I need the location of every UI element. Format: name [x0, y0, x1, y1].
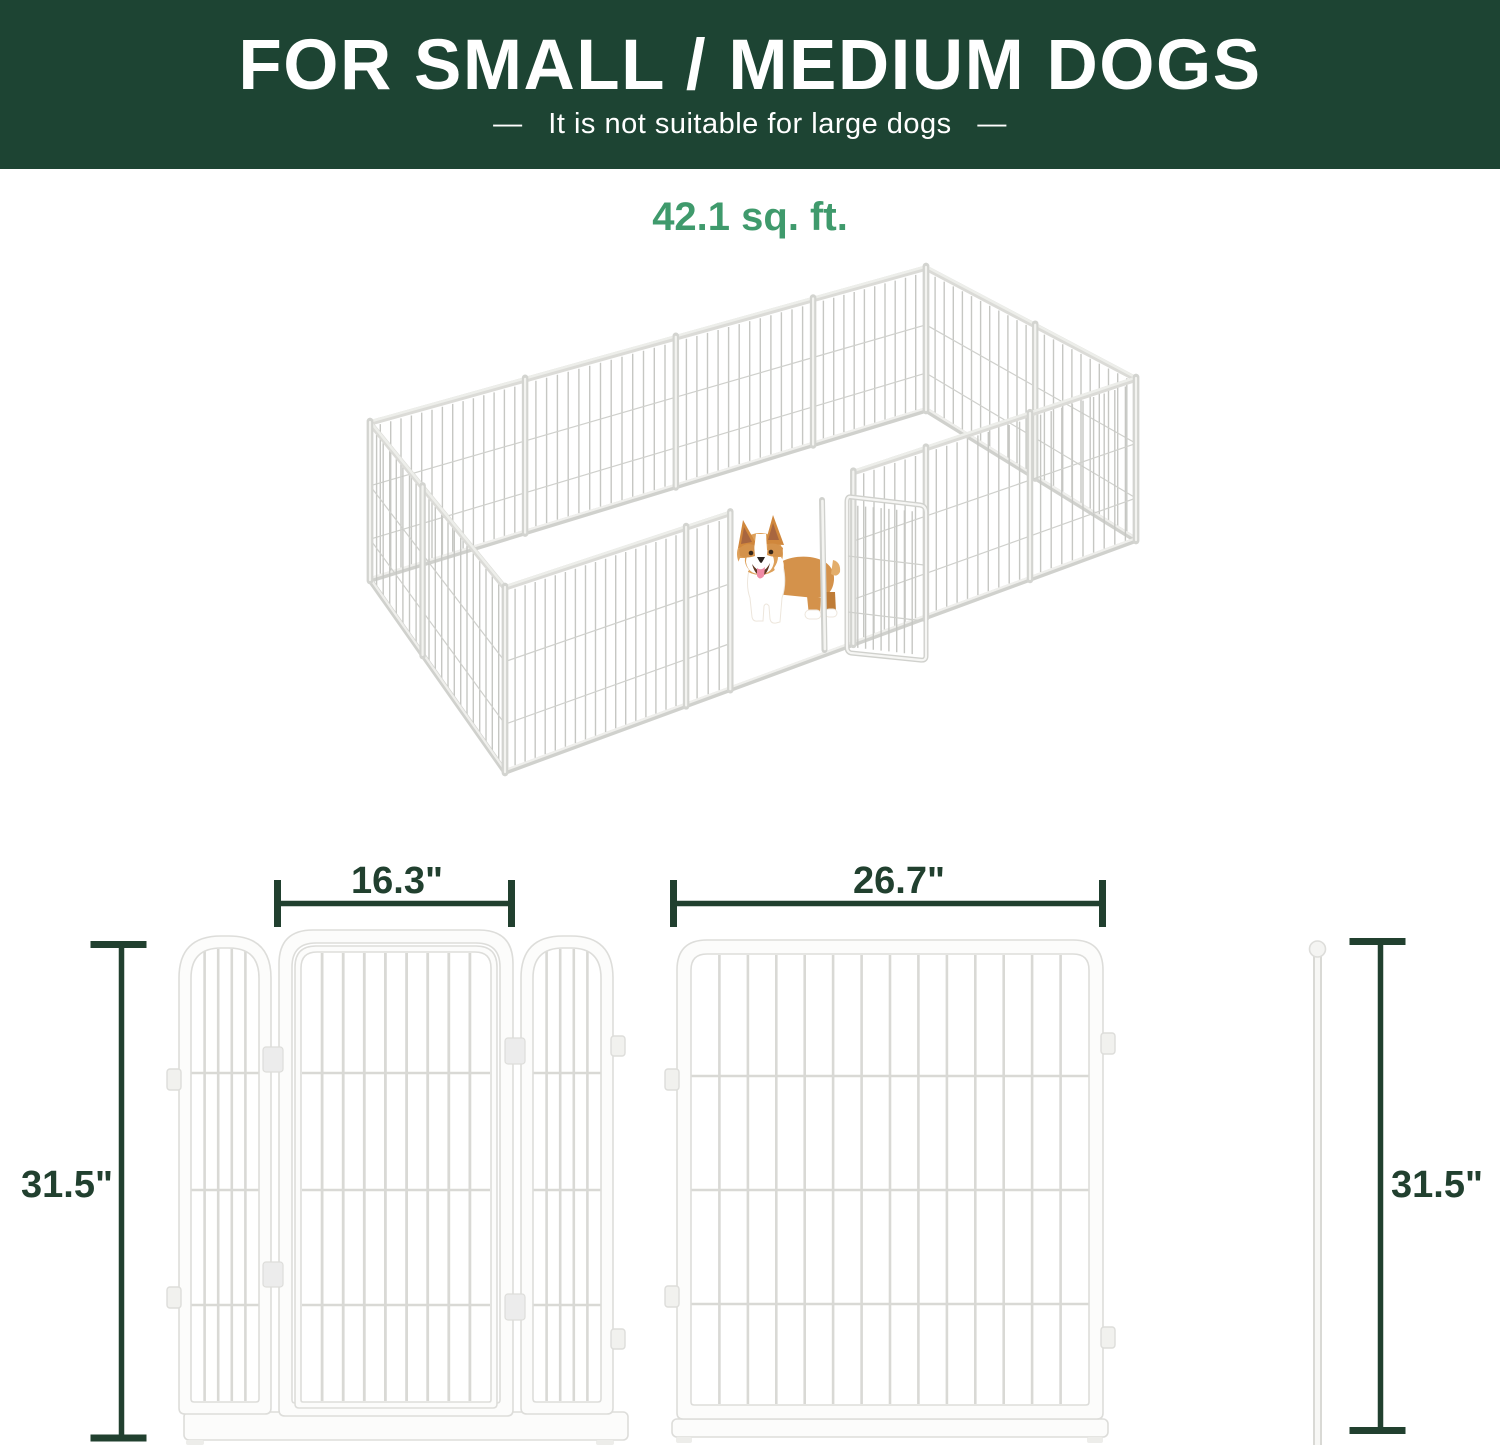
svg-text:31.5": 31.5" [1391, 1164, 1483, 1206]
svg-text:16.3": 16.3" [351, 860, 443, 902]
svg-text:31.5": 31.5" [21, 1164, 113, 1206]
svg-text:26.7": 26.7" [853, 860, 945, 902]
